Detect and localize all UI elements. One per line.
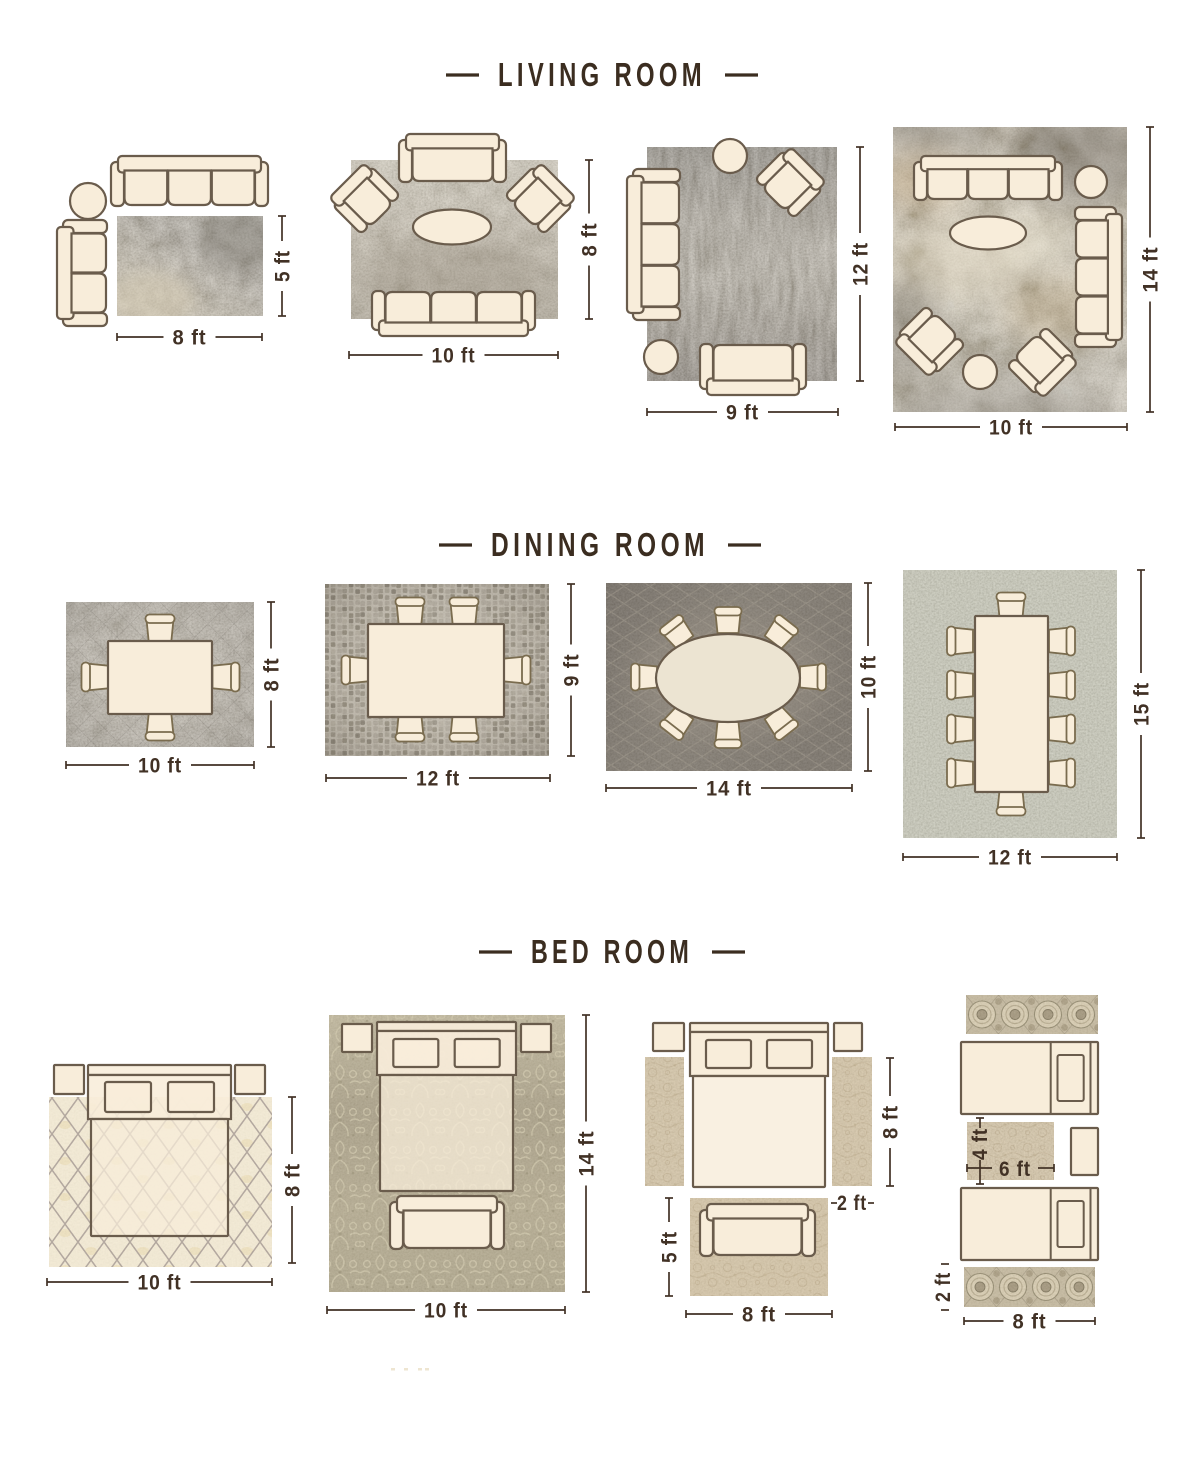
svg-text:2 ft: 2 ft: [931, 1272, 955, 1302]
svg-text:15 ft: 15 ft: [1130, 682, 1154, 726]
svg-text:8 ft: 8 ft: [879, 1105, 903, 1139]
svg-text:14 ft: 14 ft: [575, 1131, 599, 1177]
svg-text:10 ft: 10 ft: [432, 344, 476, 368]
svg-text:8 ft: 8 ft: [1013, 1310, 1047, 1334]
svg-text:DINING ROOM: DINING ROOM: [491, 526, 709, 563]
svg-text:12 ft: 12 ft: [988, 846, 1032, 870]
svg-text:10 ft: 10 ft: [424, 1299, 468, 1323]
svg-text:8 ft: 8 ft: [742, 1303, 776, 1327]
svg-text:14 ft: 14 ft: [706, 777, 752, 801]
svg-text:2 ft: 2 ft: [837, 1191, 867, 1215]
svg-text:8 ft: 8 ft: [173, 326, 207, 350]
svg-text:10 ft: 10 ft: [138, 754, 182, 778]
svg-text:14 ft: 14 ft: [1139, 247, 1163, 293]
svg-text:10 ft: 10 ft: [857, 655, 881, 699]
svg-text:10 ft: 10 ft: [989, 416, 1033, 440]
svg-text:5 ft: 5 ft: [271, 250, 295, 282]
svg-text:8 ft: 8 ft: [281, 1163, 305, 1197]
svg-text:5 ft: 5 ft: [658, 1231, 682, 1263]
svg-text:12 ft: 12 ft: [416, 767, 460, 791]
svg-text:8 ft: 8 ft: [578, 223, 602, 257]
svg-text:12 ft: 12 ft: [849, 242, 873, 286]
svg-text:4 ft: 4 ft: [968, 1128, 992, 1160]
svg-text:LIVING ROOM: LIVING ROOM: [498, 56, 706, 93]
svg-text:10 ft: 10 ft: [138, 1271, 182, 1295]
svg-text:9 ft: 9 ft: [560, 654, 584, 687]
svg-text:BED ROOM: BED ROOM: [531, 933, 693, 970]
svg-text:6 ft: 6 ft: [999, 1157, 1031, 1181]
svg-text:8 ft: 8 ft: [260, 658, 284, 692]
svg-text:9 ft: 9 ft: [726, 401, 759, 425]
